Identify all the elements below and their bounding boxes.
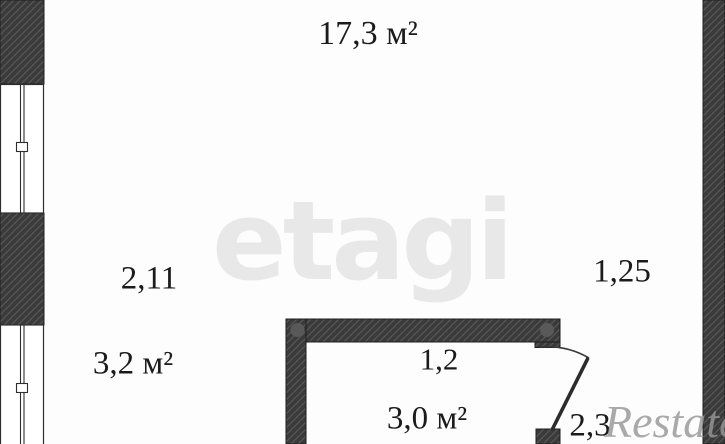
- area-label-inner-room: 3,0 м²: [387, 403, 467, 436]
- riser-dot-left: [291, 323, 305, 337]
- exterior-wall-left-middle: [0, 213, 44, 325]
- area-label-main-room: 17,3 м²: [318, 17, 418, 51]
- area-label-balcony: 3,2 м²: [93, 348, 173, 381]
- dimension-label-left: 2,11: [121, 263, 178, 296]
- riser-dot-right: [540, 323, 554, 337]
- inner-wall-top: [286, 319, 560, 342]
- dimension-label-inner-room: 1,2: [420, 344, 459, 375]
- window-sash-mark: [17, 143, 28, 152]
- exterior-wall-right: [703, 0, 725, 444]
- restate-watermark-logo: Restate: [604, 399, 725, 444]
- inner-wall-left: [286, 319, 306, 444]
- dimension-label-right: 1,25: [593, 256, 651, 289]
- exterior-wall-left-top: [0, 0, 44, 84]
- window-left-upper: [1, 85, 44, 214]
- window-left-lower: [1, 325, 44, 444]
- floor-plan-canvas: etagi: [0, 0, 725, 444]
- door-post: [536, 429, 560, 444]
- door-swing-arc: [540, 347, 589, 358]
- window-sash-mark: [17, 384, 28, 393]
